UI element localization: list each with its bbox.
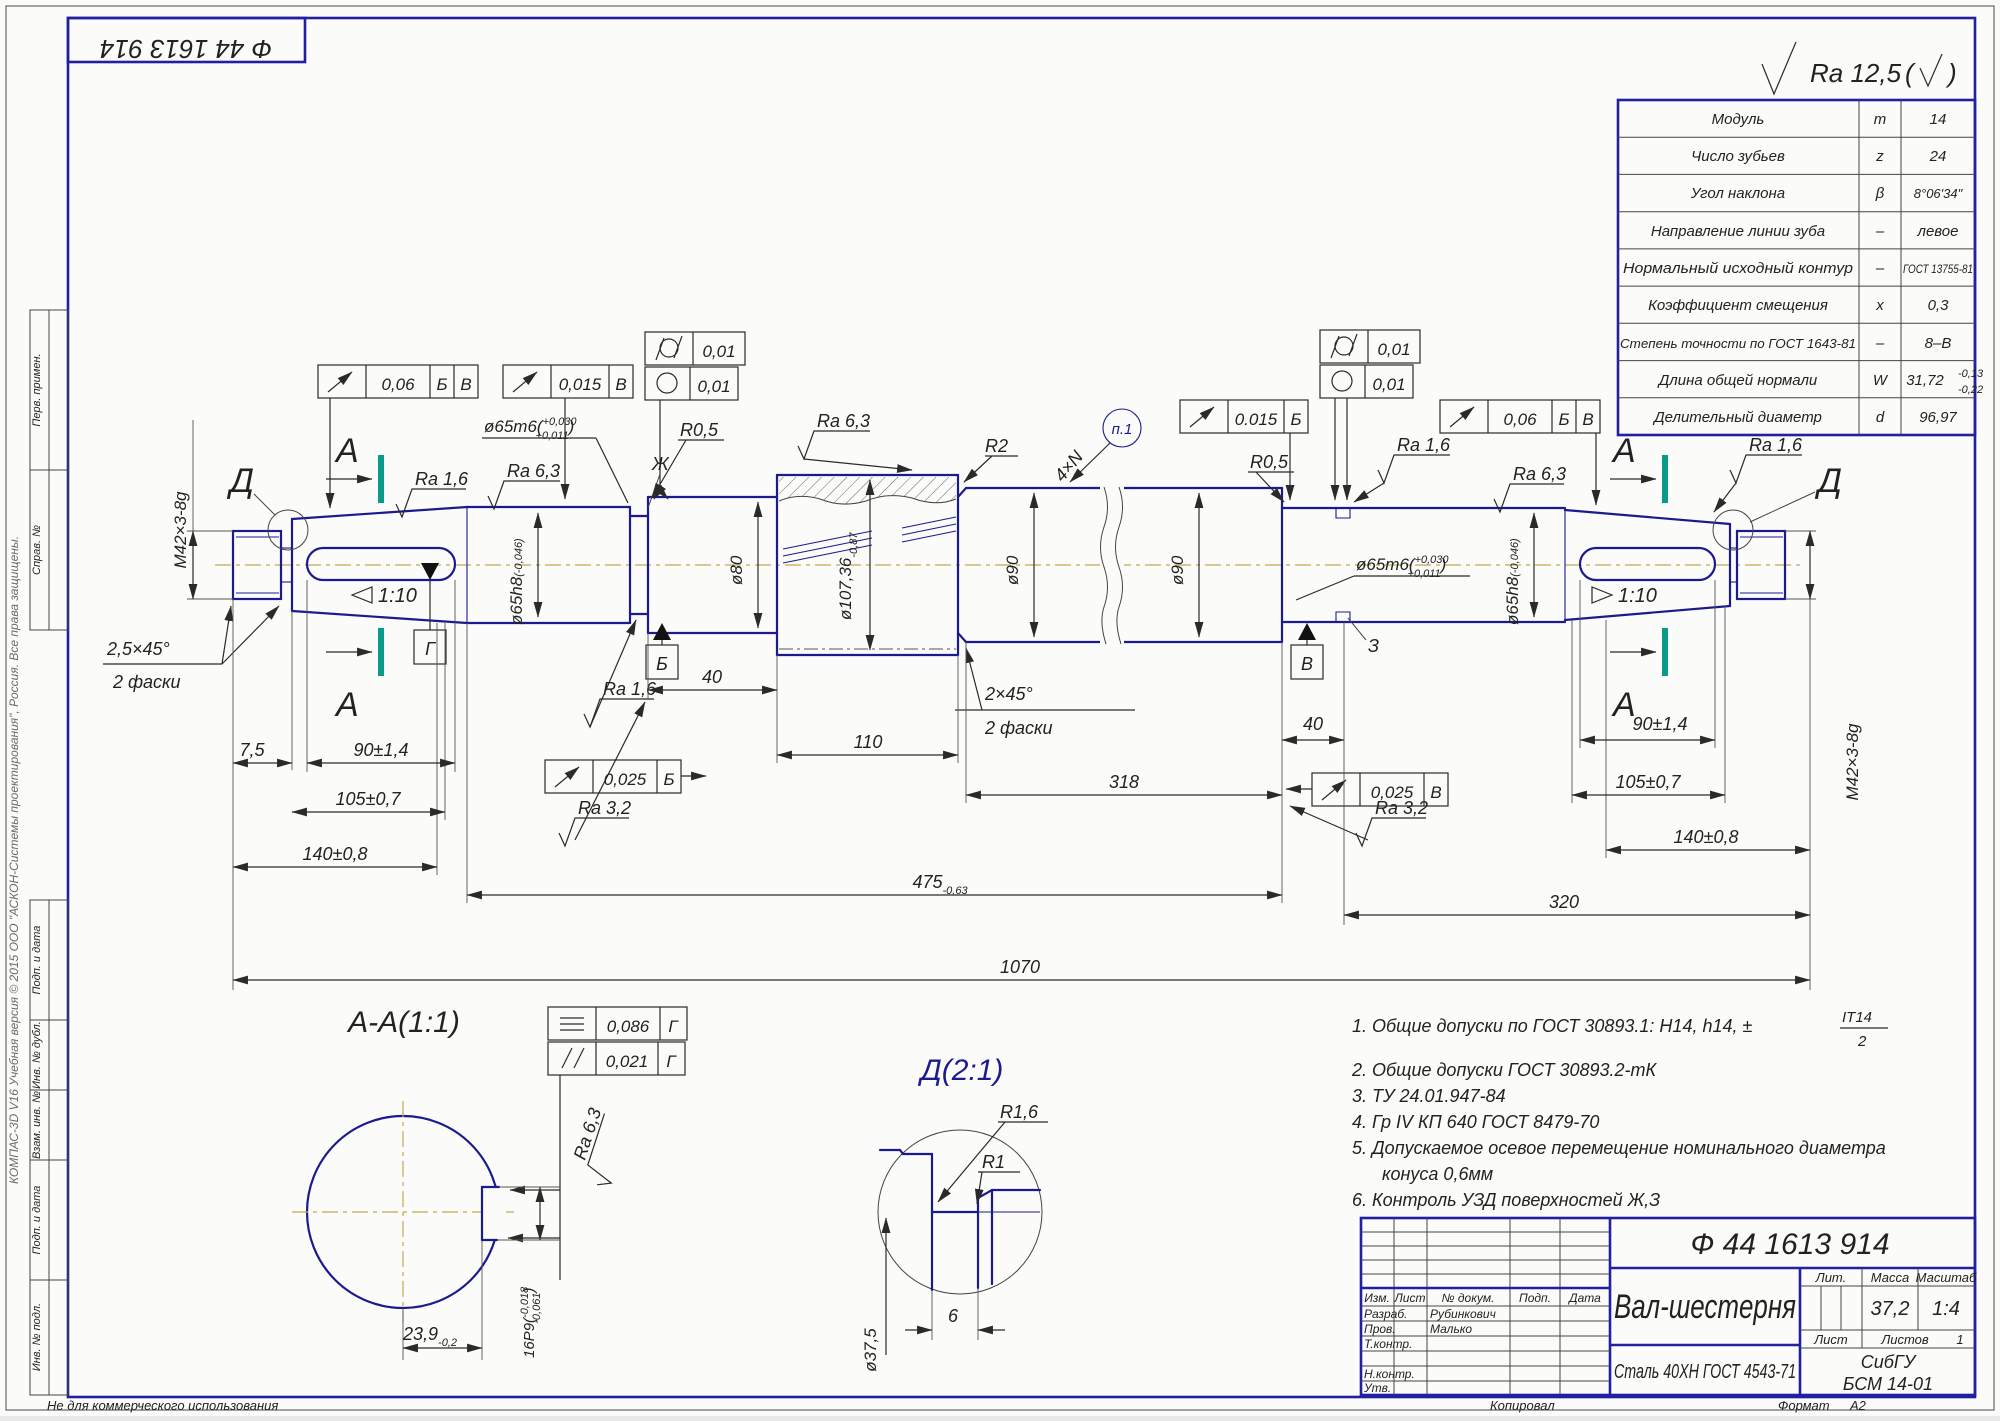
section-aa-title: А-А(1:1) <box>346 1006 460 1039</box>
margin-label-vzam-inv: Взам. инв. № <box>31 1091 43 1159</box>
row-sym: – <box>1875 335 1885 352</box>
part-name: Вал-шестерня <box>1614 1288 1796 1326</box>
radius-r16: R1,6 <box>1000 1102 1039 1122</box>
dia-80: ø80 <box>727 555 746 585</box>
datum-letter: Г <box>425 639 436 659</box>
dia-close: ) <box>1439 555 1447 574</box>
dia-tol: (-0,046) <box>1509 538 1521 577</box>
dim-318: 318 <box>1109 772 1139 792</box>
sheet-frame <box>6 6 1994 1410</box>
datum-letter: Б <box>656 654 668 674</box>
section-letter-a: А <box>1611 432 1636 470</box>
row-name: Длина общей нормали <box>1657 372 1818 389</box>
general-roughness-value: Ra 12,5 <box>1810 58 1902 88</box>
tolerance-value: 0,01 <box>697 377 730 396</box>
scale-value: 1:4 <box>1932 1298 1960 1320</box>
tolerance-value: 0,06 <box>381 375 415 394</box>
scale-label: Масштаб <box>1916 1270 1977 1285</box>
row-sym: x <box>1875 297 1884 314</box>
dim-90: 90±1,4 <box>1633 714 1688 734</box>
chamfer-left-count: 2 фаски <box>112 672 181 692</box>
datum-ref: Б <box>663 770 674 789</box>
dia-close: ) <box>567 417 575 436</box>
margin-label-perv-primen: Перв. примен. <box>31 353 43 426</box>
row-val: 8°06'34" <box>1914 186 1964 201</box>
tolerance-value: 0,01 <box>1377 340 1410 359</box>
col-list: Лист <box>1394 1291 1426 1305</box>
tolerance-value: 0,025 <box>1371 783 1414 802</box>
tolerance-value: 0.015 <box>1235 410 1278 429</box>
ra-mark: Ra 6,3 <box>507 461 560 481</box>
sheet-label: Лист <box>1813 1332 1848 1347</box>
row-sym: m <box>1874 111 1887 128</box>
dim-sub: -0,061 <box>531 1293 543 1324</box>
datum-ref: В <box>1582 410 1593 429</box>
chamfer-right-count: 2 фаски <box>984 718 1053 738</box>
datum-ref: В <box>460 375 471 394</box>
note-1-frac-bottom: 2 <box>1857 1033 1867 1050</box>
row-name: Модуль <box>1712 111 1765 128</box>
section-aa-keyway <box>482 1186 506 1241</box>
ra-mark: Ra 6,3 <box>1513 464 1566 484</box>
note-5: 5. Допускаемое осевое перемещение номина… <box>1352 1138 1886 1158</box>
row-sym: – <box>1875 260 1885 277</box>
row-val-lower-tol: -0,22 <box>1958 384 1983 396</box>
surface-letter-ze: З <box>1368 636 1379 656</box>
row-val: 31,72 <box>1906 372 1944 389</box>
note-5-cont: конуса 0,6мм <box>1382 1164 1493 1184</box>
row-val: ГОСТ 13755-81 <box>1903 262 1973 276</box>
dim-tol: -0,63 <box>942 885 968 897</box>
break-lines <box>1100 486 1124 644</box>
dim-140: 140±0,8 <box>1674 827 1739 847</box>
col-data: Дата <box>1567 1291 1601 1305</box>
table-row: Нормальный исходный контур – ГОСТ 13755-… <box>1623 260 1973 277</box>
section-letter-a: А <box>334 432 359 470</box>
copied-label: Копировал <box>1490 1398 1555 1413</box>
tolerance-value: 0,06 <box>1503 410 1537 429</box>
ra-mark: Ra 1,6 <box>1749 435 1803 455</box>
margin-label-podp-data-2: Подп. и дата <box>31 1186 43 1255</box>
dim-320: 320 <box>1549 892 1579 912</box>
col-ndocum: № докум. <box>1442 1291 1495 1305</box>
dia-90: ø90 <box>1168 555 1187 585</box>
margin-label-podp-data-1: Подп. и дата <box>31 926 43 995</box>
margin-label-sprav: Справ. № <box>31 525 43 575</box>
ra-mark: Ra 1,6 <box>603 679 657 699</box>
detail-d-title: Д(2:1) <box>918 1054 1004 1087</box>
lit-label: Лит. <box>1815 1270 1846 1285</box>
drawing-canvas: Ф 44 1613 914 Перв. примен. Справ. № Под… <box>0 0 2000 1416</box>
dim-40: 40 <box>1303 714 1323 734</box>
dia-text: ø65h8 <box>1503 576 1522 625</box>
note-3: 3. ТУ 24.01.947-84 <box>1352 1086 1506 1106</box>
row-val: левое <box>1917 223 1959 240</box>
row-val: 14 <box>1930 111 1947 128</box>
margin-label-inv-podl: Инв. № подл. <box>31 1303 43 1371</box>
tolerance-value: 0,021 <box>606 1052 649 1071</box>
position-callout: п.1 <box>1112 421 1133 438</box>
format-label: Формат <box>1778 1398 1830 1413</box>
role-prov: Пров. <box>1364 1322 1396 1336</box>
org-name: СибГУ <box>1861 1352 1917 1372</box>
tolerance-value: 0,01 <box>702 342 735 361</box>
dia-text: ø65h8 <box>507 576 526 625</box>
thread-m42-left: M42×3-8g <box>171 491 190 569</box>
row-name: Степень точности по ГОСТ 1643-81 <box>1620 336 1856 351</box>
row-val: 0,3 <box>1928 297 1950 314</box>
chamfer-right-size: 2×45° <box>984 684 1033 704</box>
note-1-frac-top: IT14 <box>1842 1009 1872 1026</box>
tolerance-value: 0,086 <box>607 1017 650 1036</box>
dim-close: ) <box>521 1288 538 1295</box>
row-name: Направление линии зуба <box>1651 223 1825 240</box>
cut-plane-bar <box>378 455 384 503</box>
datum-ref: Б <box>1290 410 1301 429</box>
dim-value: 23,9 <box>402 1324 438 1344</box>
sheets-label: Листов <box>1880 1332 1929 1347</box>
row-sym: – <box>1875 223 1885 240</box>
dim-140: 140±0,8 <box>303 844 368 864</box>
dim-tol: -0,2 <box>438 1337 457 1349</box>
org-group: БСМ 14-01 <box>1843 1374 1933 1394</box>
note-1: 1. Общие допуски по ГОСТ 30893.1: H14, h… <box>1352 1016 1752 1036</box>
cut-plane-bar <box>1662 455 1668 503</box>
dim-40: 40 <box>702 667 722 687</box>
row-val: 96,97 <box>1919 409 1957 426</box>
ra-mark: Ra 3,2 <box>578 798 631 818</box>
chamfer-left-size: 2,5×45° <box>106 639 170 659</box>
mass-label: Масса <box>1871 1270 1909 1285</box>
taper-right-value: 1:10 <box>1618 585 1657 607</box>
cut-plane-bar <box>378 628 384 676</box>
doc-number: Ф 44 1613 914 <box>1690 1228 1889 1261</box>
dim-1070: 1070 <box>1000 957 1040 977</box>
row-name: Нормальный исходный контур <box>1623 260 1853 277</box>
dia-tol: -0,87 <box>848 532 860 558</box>
col-izm: Изм. <box>1364 1291 1390 1305</box>
note-2: 2. Общие допуски ГОСТ 30893.2-тК <box>1351 1060 1658 1080</box>
datum-ref: В <box>1430 783 1441 802</box>
detail-letter-d: Д <box>1814 462 1842 500</box>
stamp-code: Ф 44 1613 914 <box>100 34 272 64</box>
tolerance-value: 0,025 <box>604 770 647 789</box>
name-razrab: Рубинкович <box>1430 1307 1496 1321</box>
radius-r05: R0,5 <box>680 420 719 440</box>
dim-110: 110 <box>854 732 883 752</box>
row-sym: z <box>1875 148 1884 165</box>
col-podp: Подп. <box>1519 1291 1551 1305</box>
radius-r05: R0,5 <box>1250 452 1289 472</box>
row-val-upper-tol: -0,13 <box>1958 368 1984 380</box>
ra-mark: Ra 1,6 <box>1397 435 1451 455</box>
cut-plane-bar <box>1662 628 1668 676</box>
name-prov: Малько <box>1430 1322 1472 1336</box>
detail-letter-d: Д <box>226 462 254 500</box>
dim-105: 105±0,7 <box>336 789 402 809</box>
row-name: Число зубьев <box>1691 148 1785 165</box>
datum-ref: Б <box>436 375 447 394</box>
row-name: Делительный диаметр <box>1652 409 1822 426</box>
role-utv: Утв. <box>1363 1381 1391 1395</box>
dim-value: 475 <box>912 872 943 892</box>
margin-label-inv-dubl: Инв. № дубл. <box>31 1021 43 1089</box>
dia-sub: +0,011 <box>536 430 569 442</box>
drawing-sheet: Ф 44 1613 914 Перв. примен. Справ. № Под… <box>0 0 2000 1416</box>
datum-ref: В <box>615 375 626 394</box>
role-razrab: Разраб. <box>1364 1307 1407 1321</box>
row-sym: W <box>1873 372 1889 389</box>
datum-letter: В <box>1301 654 1313 674</box>
ra-mark: Ra 6,3 <box>817 411 870 431</box>
ra-mark: Ra 1,6 <box>415 469 469 489</box>
row-val: 24 <box>1929 148 1947 165</box>
dim-6: 6 <box>948 1306 959 1326</box>
dia-37-5: ø37,5 <box>861 1328 880 1372</box>
row-name: Коэффициент смещения <box>1648 297 1828 314</box>
dim-7-5: 7,5 <box>239 740 265 760</box>
tolerance-value: 0,01 <box>1372 375 1405 394</box>
role-nkontr: Н.контр. <box>1364 1367 1415 1381</box>
thread-m42-right: M42×3-8g <box>1843 723 1862 801</box>
datum-ref: Б <box>1558 410 1569 429</box>
taper-left-value: 1:10 <box>378 585 417 607</box>
radius-r2: R2 <box>985 436 1008 456</box>
section-letter-a: А <box>334 686 359 724</box>
dia-text: ø107,36 <box>836 557 855 620</box>
dia-90: ø90 <box>1003 555 1022 585</box>
not-for-commercial-note: Не для коммерческого использования <box>47 1398 278 1413</box>
radius-r1: R1 <box>982 1152 1005 1172</box>
row-sym: d <box>1876 409 1885 426</box>
dia-sub: +0,011 <box>1408 568 1441 580</box>
sheets-value: 1 <box>1956 1332 1963 1347</box>
kompas-watermark: КОМПАС-3D V16 Учебная версия © 2015 ООО … <box>7 536 21 1184</box>
note-4: 4. Гр IV КП 640 ГОСТ 8479-70 <box>1352 1112 1599 1132</box>
role-tkontr: Т.контр. <box>1364 1337 1412 1351</box>
dim-105: 105±0,7 <box>1616 772 1682 792</box>
row-sym: β <box>1875 185 1885 202</box>
dia-tol: (-0,046) <box>513 538 525 577</box>
format-value: А2 <box>1849 1398 1867 1413</box>
tolerance-value: 0,015 <box>559 375 602 394</box>
dim-90: 90±1,4 <box>354 740 409 760</box>
mass-value: 37,2 <box>1871 1298 1910 1320</box>
row-val: 8–В <box>1925 335 1952 352</box>
part-material: Сталь 40ХН ГОСТ 4543-71 <box>1614 1361 1796 1383</box>
row-name: Угол наклона <box>1690 185 1785 202</box>
note-6: 6. Контроль УЗД поверхностей Ж,З <box>1352 1190 1660 1210</box>
